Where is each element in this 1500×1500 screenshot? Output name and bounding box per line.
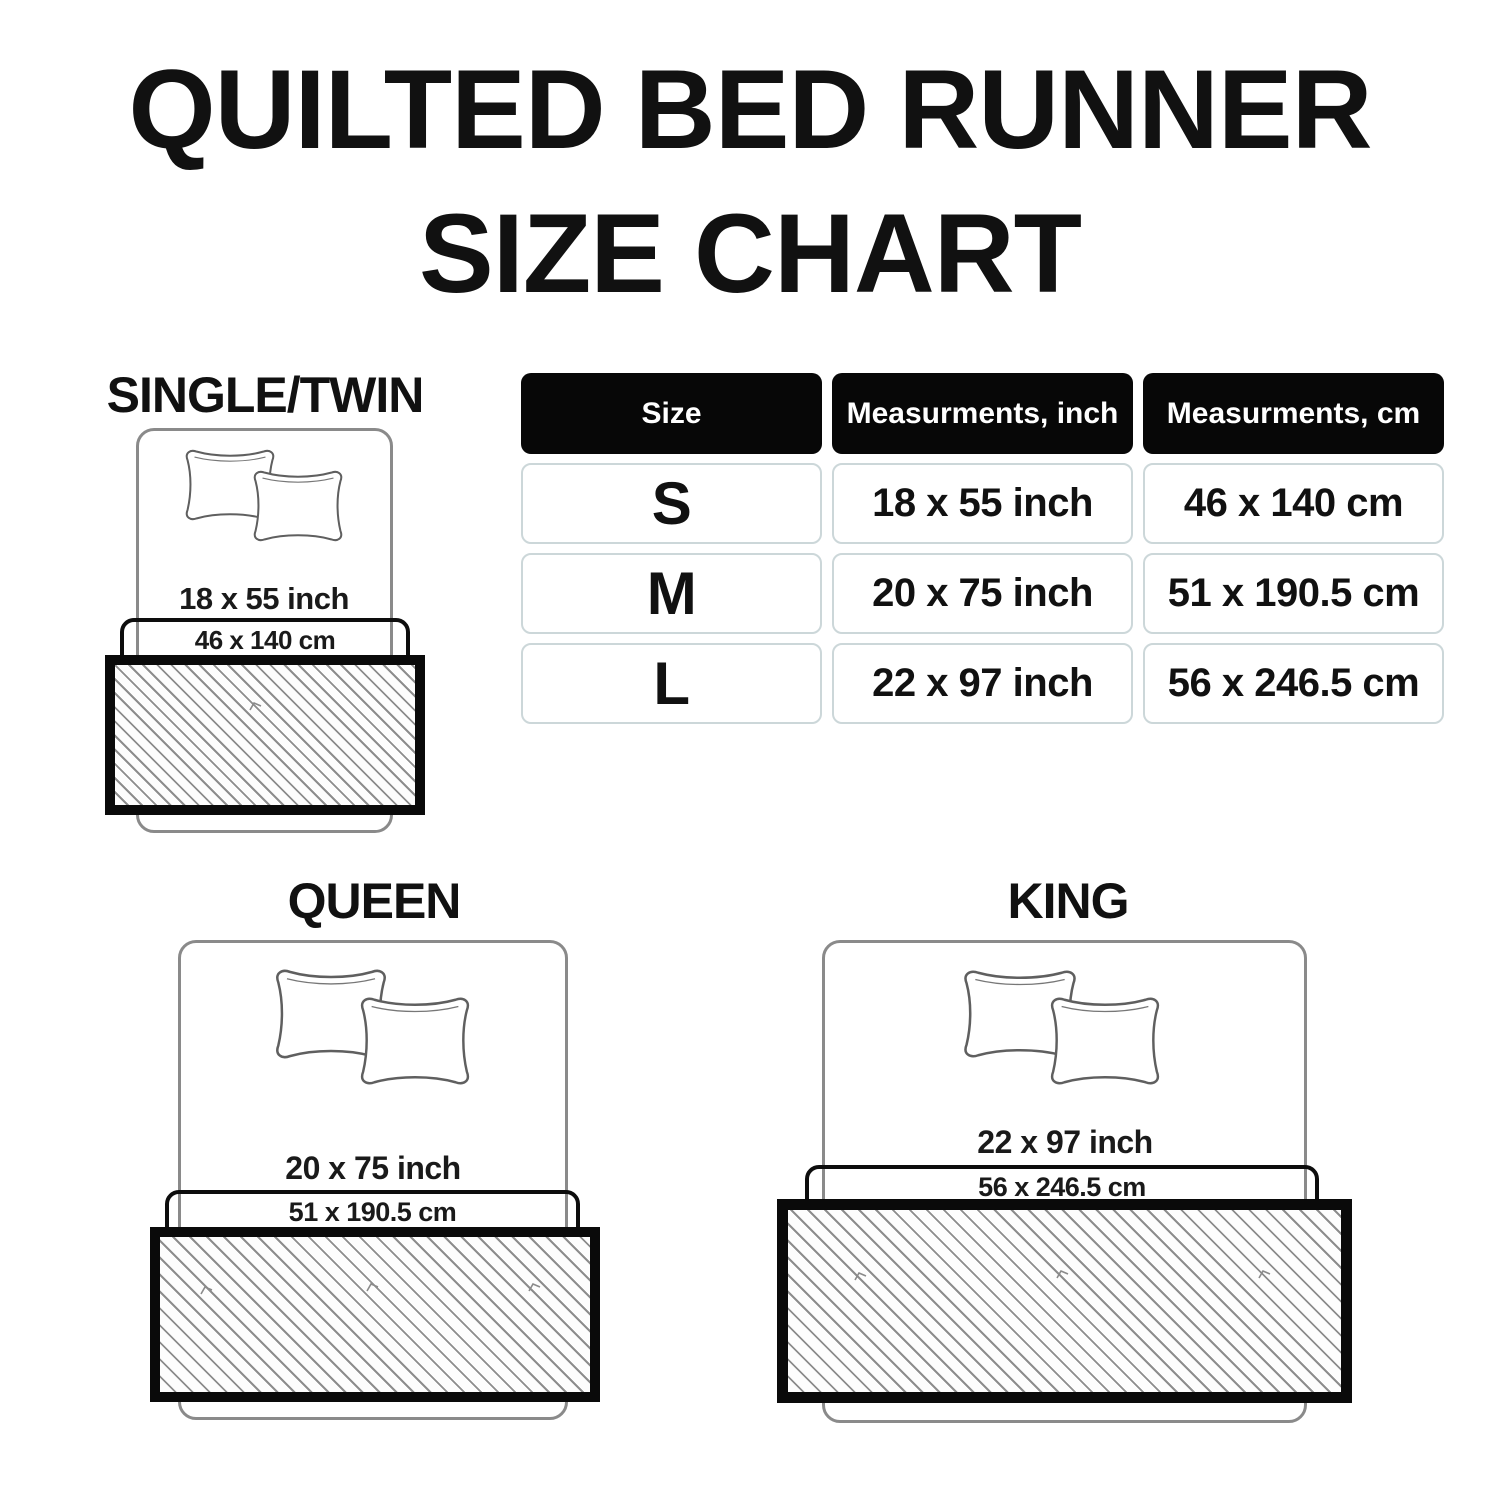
king-runner: [777, 1199, 1352, 1403]
table-cell-cm-l: 56 x 246.5 cm: [1143, 643, 1444, 724]
pillow-icon: [349, 994, 481, 1088]
page-title-line2: SIZE CHART: [0, 182, 1500, 326]
single-twin-label: SINGLE/TWIN: [85, 366, 445, 424]
king-inch-size: 22 x 97 inch: [865, 1124, 1265, 1161]
table-cell-inch-l: 22 x 97 inch: [832, 643, 1133, 724]
single-twin-inch-size: 18 x 55 inch: [114, 581, 414, 617]
table-cell-size-l: L: [521, 643, 822, 724]
page-title-line1: QUILTED BED RUNNER: [0, 38, 1500, 182]
single-twin-cm-size: 46 x 140 cm: [124, 625, 406, 656]
queen-label: QUEEN: [174, 872, 574, 930]
pillow-icon: [1039, 994, 1171, 1088]
pillow-icon: [244, 468, 352, 544]
page-title: QUILTED BED RUNNER SIZE CHART: [0, 38, 1500, 326]
queen-runner: [150, 1227, 600, 1402]
size-chart-infographic: QUILTED BED RUNNER SIZE CHART SINGLE/TWI…: [0, 0, 1500, 1500]
stitch-mark-icon: [528, 1283, 542, 1293]
table-cell-size-s: S: [521, 463, 822, 544]
stitch-mark-icon: [200, 1286, 214, 1296]
size-table-header-inch: Measurments, inch: [832, 373, 1133, 454]
table-cell-size-m: M: [521, 553, 822, 634]
stitch-mark-icon: [1258, 1270, 1272, 1280]
king-label: KING: [868, 872, 1268, 930]
table-cell-cm-m: 51 x 190.5 cm: [1143, 553, 1444, 634]
size-table: Size Measurments, inch Measurments, cm S…: [521, 373, 1444, 724]
table-cell-inch-m: 20 x 75 inch: [832, 553, 1133, 634]
stitch-mark-icon: [1056, 1270, 1070, 1280]
stitch-mark-icon: [366, 1283, 380, 1293]
table-cell-inch-s: 18 x 55 inch: [832, 463, 1133, 544]
table-cell-cm-s: 46 x 140 cm: [1143, 463, 1444, 544]
stitch-mark-icon: [249, 702, 263, 712]
stitch-mark-icon: [854, 1272, 868, 1282]
size-table-header-size: Size: [521, 373, 822, 454]
single-twin-runner: [105, 655, 425, 815]
queen-inch-size: 20 x 75 inch: [173, 1150, 573, 1187]
queen-cm-size: 51 x 190.5 cm: [169, 1197, 576, 1228]
size-table-header-cm: Measurments, cm: [1143, 373, 1444, 454]
